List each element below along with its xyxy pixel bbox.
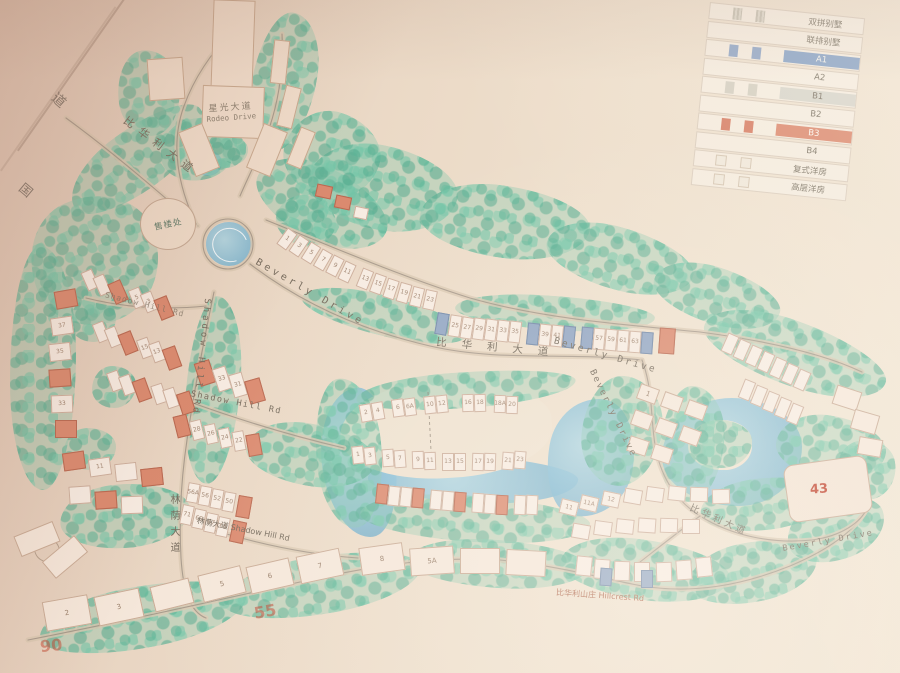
rodeo-drive-label: 星光大道 Rodeo Drive — [205, 98, 256, 123]
road-label-bihuali-top: 比华利大道 — [120, 113, 202, 180]
legend-swatch — [704, 66, 782, 74]
road-label-bihuali-bottom: 比华利大道 — [688, 500, 751, 538]
handwritten-90: 90 — [39, 635, 63, 656]
road-label-linyin-vertical: 林荫大道 — [166, 494, 181, 558]
handwritten-55: 55 — [253, 600, 278, 623]
legend: 双拼别墅 联排别墅 A1 A2 B1 B2 B3 B4 — [691, 2, 865, 202]
road-label-bihuali-mid: 比华利大道 — [436, 334, 564, 360]
legend-swatch — [692, 171, 771, 190]
road-label-beverly-top: Beverly Drive — [254, 257, 367, 328]
road-label-beverly-bottom: Beverly Drive — [782, 528, 875, 554]
legend-swatch — [708, 29, 786, 37]
road-label-beverly-mid: Beverly Drive — [553, 335, 659, 375]
road-label-shadow-west: Shadow Hill Rd — [104, 290, 185, 318]
site-plan-photo: 道 国 — [0, 0, 900, 673]
road-label-shadow-mid: Shadow Hill Rd — [190, 389, 283, 416]
road-label-hillcrest: 比华利山庄 Hillcrest Rd — [556, 587, 645, 604]
road-label-linyin-horizontal: 林荫大道 Shadow Hill Rd — [196, 515, 291, 544]
legend-swatch — [697, 139, 775, 147]
road-label-beverly-right: Beverly Drive — [587, 368, 638, 459]
building-43-label: 43 — [809, 481, 828, 497]
legend-swatch — [700, 103, 778, 111]
